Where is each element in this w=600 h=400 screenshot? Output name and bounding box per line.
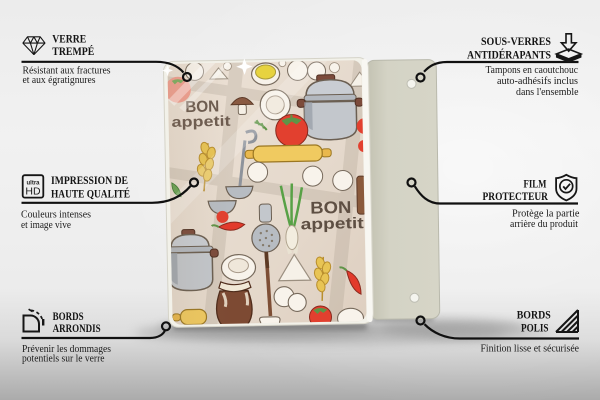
- svg-text:SOUS-VERRES: SOUS-VERRES: [481, 35, 551, 48]
- svg-text:potentiels sur le verre: potentiels sur le verre: [22, 353, 105, 365]
- svg-text:BORDS: BORDS: [517, 309, 551, 322]
- svg-text:FILM: FILM: [524, 177, 547, 190]
- svg-text:ANTIDÉRAPANTS: ANTIDÉRAPANTS: [467, 48, 551, 62]
- svg-text:et image vive: et image vive: [21, 219, 71, 231]
- svg-text:TREMPÉ: TREMPÉ: [52, 44, 94, 58]
- svg-text:HAUTE QUALITÉ: HAUTE QUALITÉ: [51, 187, 130, 201]
- svg-text:PROTECTEUR: PROTECTEUR: [483, 190, 549, 203]
- svg-text:appetit: appetit: [300, 215, 363, 233]
- svg-text:BORDS: BORDS: [53, 310, 84, 323]
- svg-text:dans l'ensemble: dans l'ensemble: [516, 86, 579, 98]
- svg-text:ARRONDIS: ARRONDIS: [53, 322, 101, 335]
- svg-text:IMPRESSION DE: IMPRESSION DE: [51, 174, 128, 187]
- svg-text:HD: HD: [25, 186, 41, 198]
- svg-text:VERRE: VERRE: [52, 33, 86, 46]
- svg-text:et aux égratignures: et aux égratignures: [23, 74, 96, 86]
- svg-text:arrière du produit: arrière du produit: [510, 218, 578, 230]
- svg-text:POLIS: POLIS: [521, 322, 549, 335]
- svg-text:Finition lisse et sécurisée: Finition lisse et sécurisée: [481, 343, 580, 355]
